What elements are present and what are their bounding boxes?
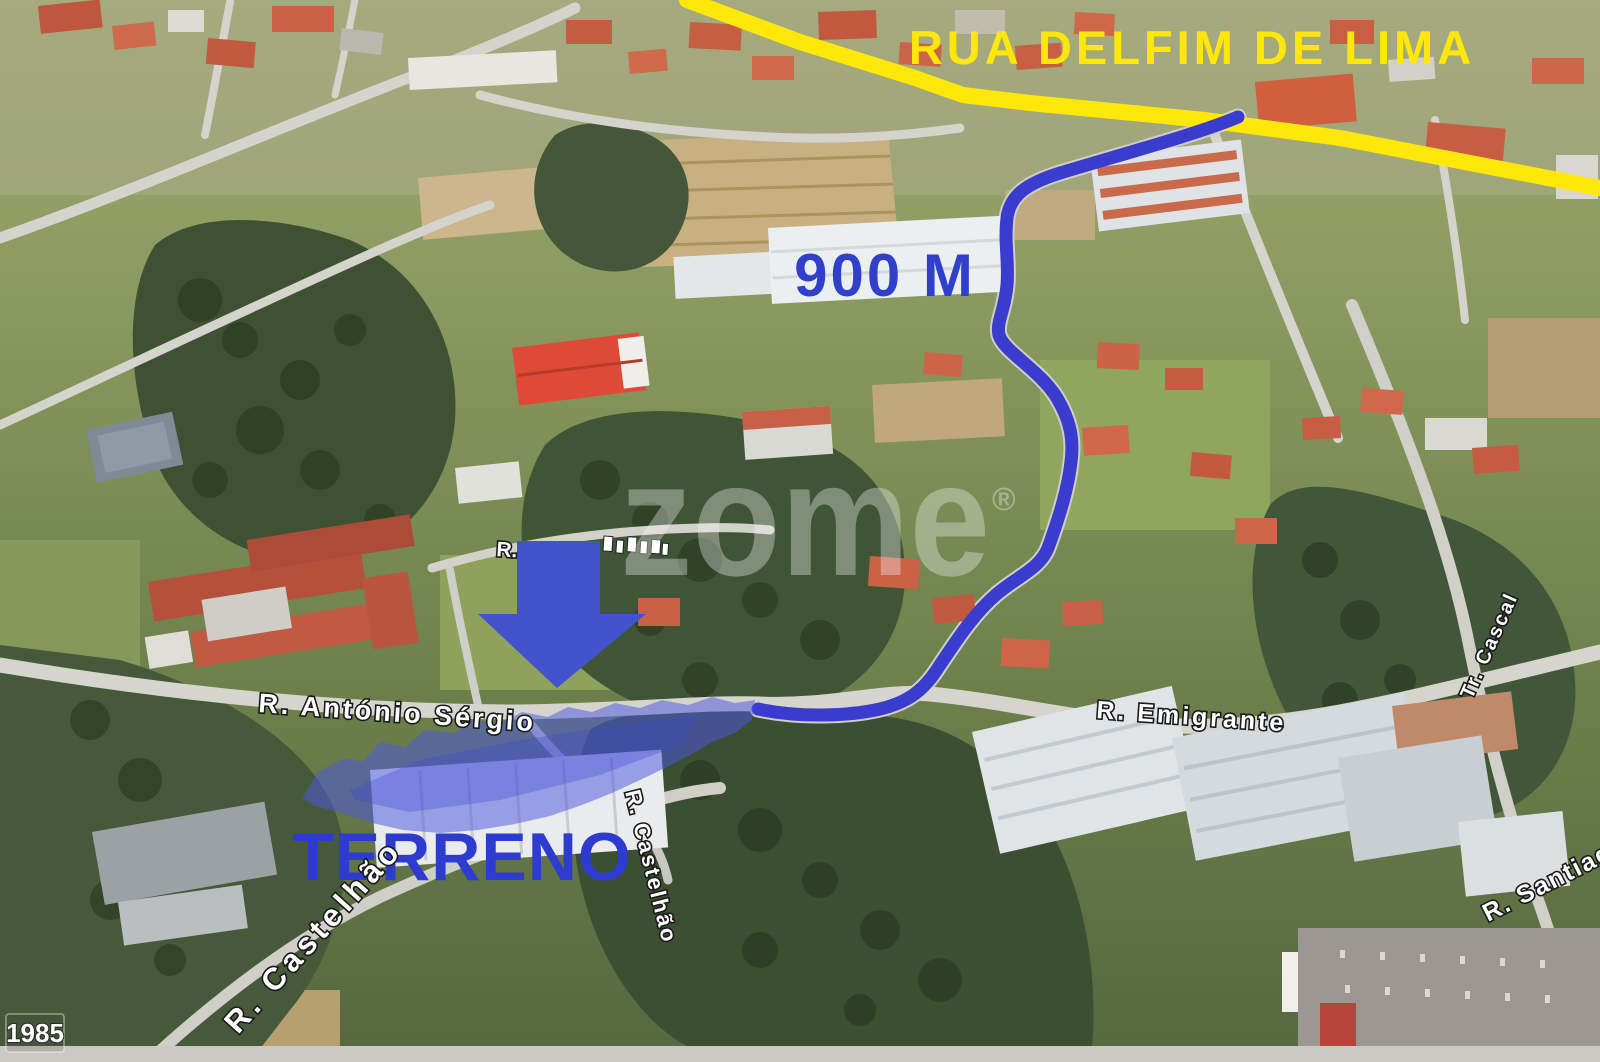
watermark-text: zome [620, 429, 990, 610]
corner-apartment-block [1282, 928, 1600, 1062]
imagery-year-text: 1985 [6, 1018, 64, 1048]
watermark-registered-icon: ® [992, 481, 1016, 517]
aerial-map-view[interactable]: RUA DELFIM DE LIMA 900 M TERRENO R. Antó… [0, 0, 1600, 1062]
distance-label: 900 M [794, 242, 976, 309]
imagery-year-badge: 1985 [6, 1014, 64, 1052]
street-label-obscured: R. [496, 538, 519, 562]
watermark: zome ® [620, 429, 1016, 610]
main-road-title: RUA DELFIM DE LIMA [909, 21, 1475, 74]
bottom-pavement-strip [0, 1046, 1600, 1062]
